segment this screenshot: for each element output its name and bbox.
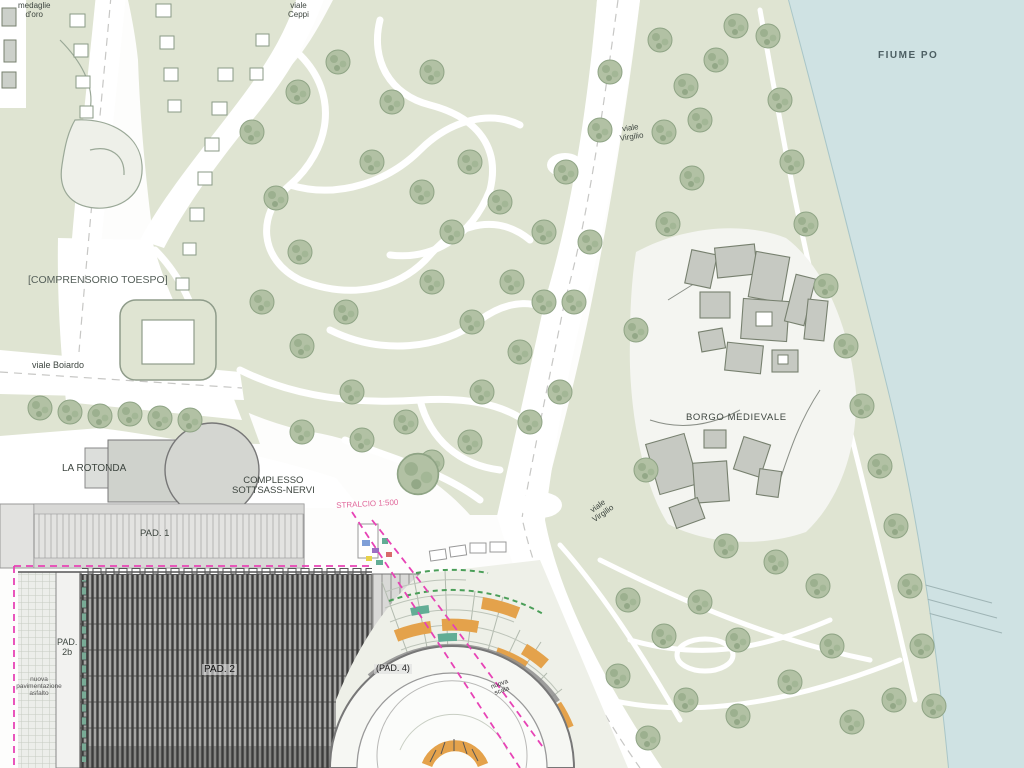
label-comprensorio-toespo: [COMPRENSORIO TOESPO] bbox=[28, 275, 168, 287]
label-pad-1: PAD. 1 bbox=[140, 529, 169, 539]
label-pad-2: PAD. 2 bbox=[202, 664, 237, 675]
fountain-square bbox=[120, 300, 216, 380]
pad2-side-ticks bbox=[80, 580, 88, 762]
label-complesso-sottsass-nervi: COMPLESSO SOTTSASS-NERVI bbox=[232, 476, 315, 497]
label-fiume-po: FIUME PO bbox=[878, 50, 938, 61]
site-plan-drawing bbox=[0, 0, 1024, 768]
label-corso-top-left: medaglie d'oro bbox=[18, 2, 50, 20]
pad2-column-ticks bbox=[82, 566, 372, 575]
label-pad-4: (PAD. 4) bbox=[374, 664, 412, 674]
label-la-rotonda: LA ROTONDA bbox=[62, 463, 126, 474]
label-viale-boiardo: viale Boiardo bbox=[32, 361, 84, 371]
paved-plaza bbox=[18, 572, 56, 768]
pad2b-building bbox=[56, 572, 80, 768]
edge-buildings bbox=[2, 8, 16, 88]
label-pad-2b: PAD. 2b bbox=[57, 638, 77, 658]
label-viale-ceppi: viale Ceppi bbox=[288, 2, 309, 20]
site-plan-map: medaglie d'oro viale Ceppi FIUME PO [COM… bbox=[0, 0, 1024, 768]
label-borgo-medievale: BORGO MEDIEVALE bbox=[686, 413, 787, 423]
label-viale-virgilio-nord: viale Virgilio bbox=[618, 123, 644, 144]
label-nuova-pavimentazione: nuova pavimentazione asfalto bbox=[8, 676, 70, 697]
